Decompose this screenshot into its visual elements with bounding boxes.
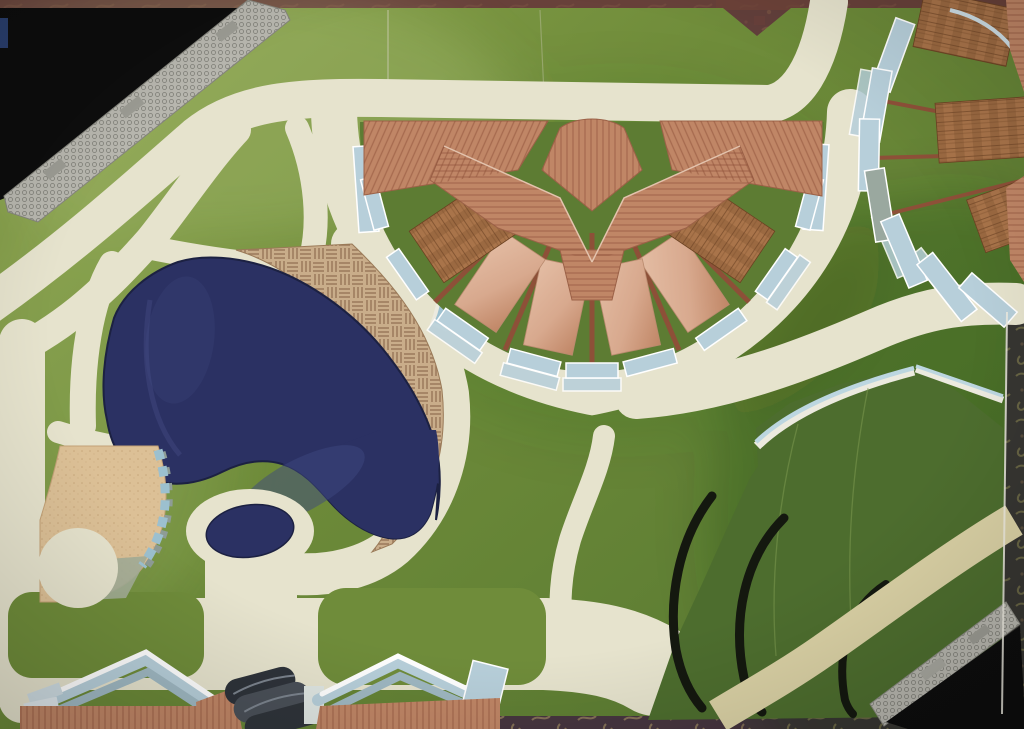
photo-vignette — [0, 0, 1024, 729]
site-model-canvas: Aerial photograph of an architectural si… — [0, 0, 1024, 729]
site-model-photo: Aerial photograph of an architectural si… — [0, 0, 1024, 729]
